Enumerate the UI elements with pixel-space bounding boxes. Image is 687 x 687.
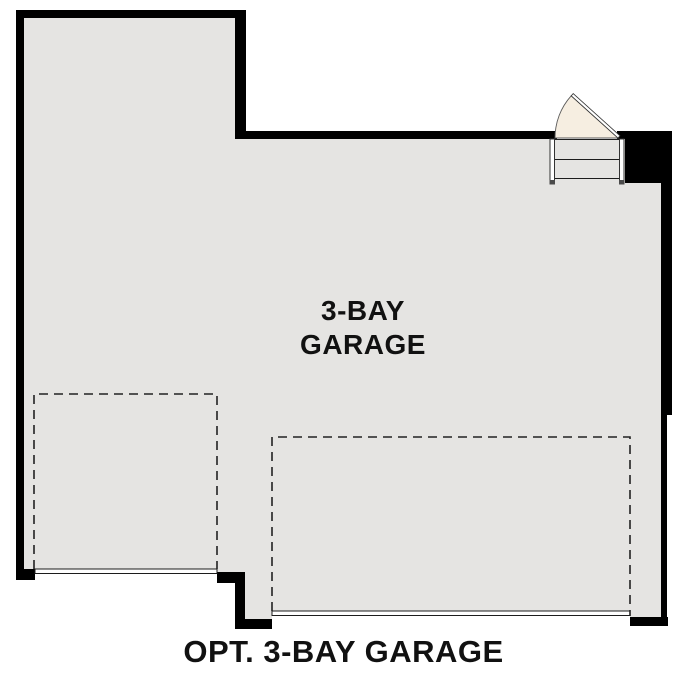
- entry-steps-left-cap: [550, 180, 556, 185]
- wall-bottom-left-stub: [16, 569, 35, 580]
- wall-top-left-section: [16, 10, 246, 18]
- wall-bottom-right-stub: [630, 617, 668, 626]
- wall-door-right-strip: [617, 131, 672, 139]
- wall-right-upper: [661, 183, 672, 415]
- floorplan-page: 3-BAY GARAGE OPT. 3-BAY GARAGE: [0, 0, 687, 687]
- room-label-line2: GARAGE: [233, 328, 493, 362]
- room-label: 3-BAY GARAGE: [233, 294, 493, 362]
- entry-steps-right-rail: [620, 139, 625, 183]
- plan-caption: OPT. 3-BAY GARAGE: [0, 634, 687, 670]
- wall-step-bottom-stub: [235, 619, 272, 629]
- wall-step-vertical: [235, 572, 245, 622]
- room-label-line1: 3-BAY: [233, 294, 493, 328]
- garage-door-opening-right: [272, 611, 630, 616]
- wall-right-lower: [661, 415, 667, 626]
- wall-top-right-section: [235, 131, 557, 139]
- entry-steps-right-cap: [619, 180, 625, 185]
- door-swing-arc: [555, 96, 618, 138]
- wall-corner-block: [625, 139, 672, 183]
- wall-left: [16, 10, 24, 580]
- wall-tall-section-right: [235, 10, 246, 139]
- entry-door-swing: [555, 94, 620, 138]
- entry-steps-left-rail: [550, 139, 555, 183]
- garage-door-opening-left: [35, 569, 217, 574]
